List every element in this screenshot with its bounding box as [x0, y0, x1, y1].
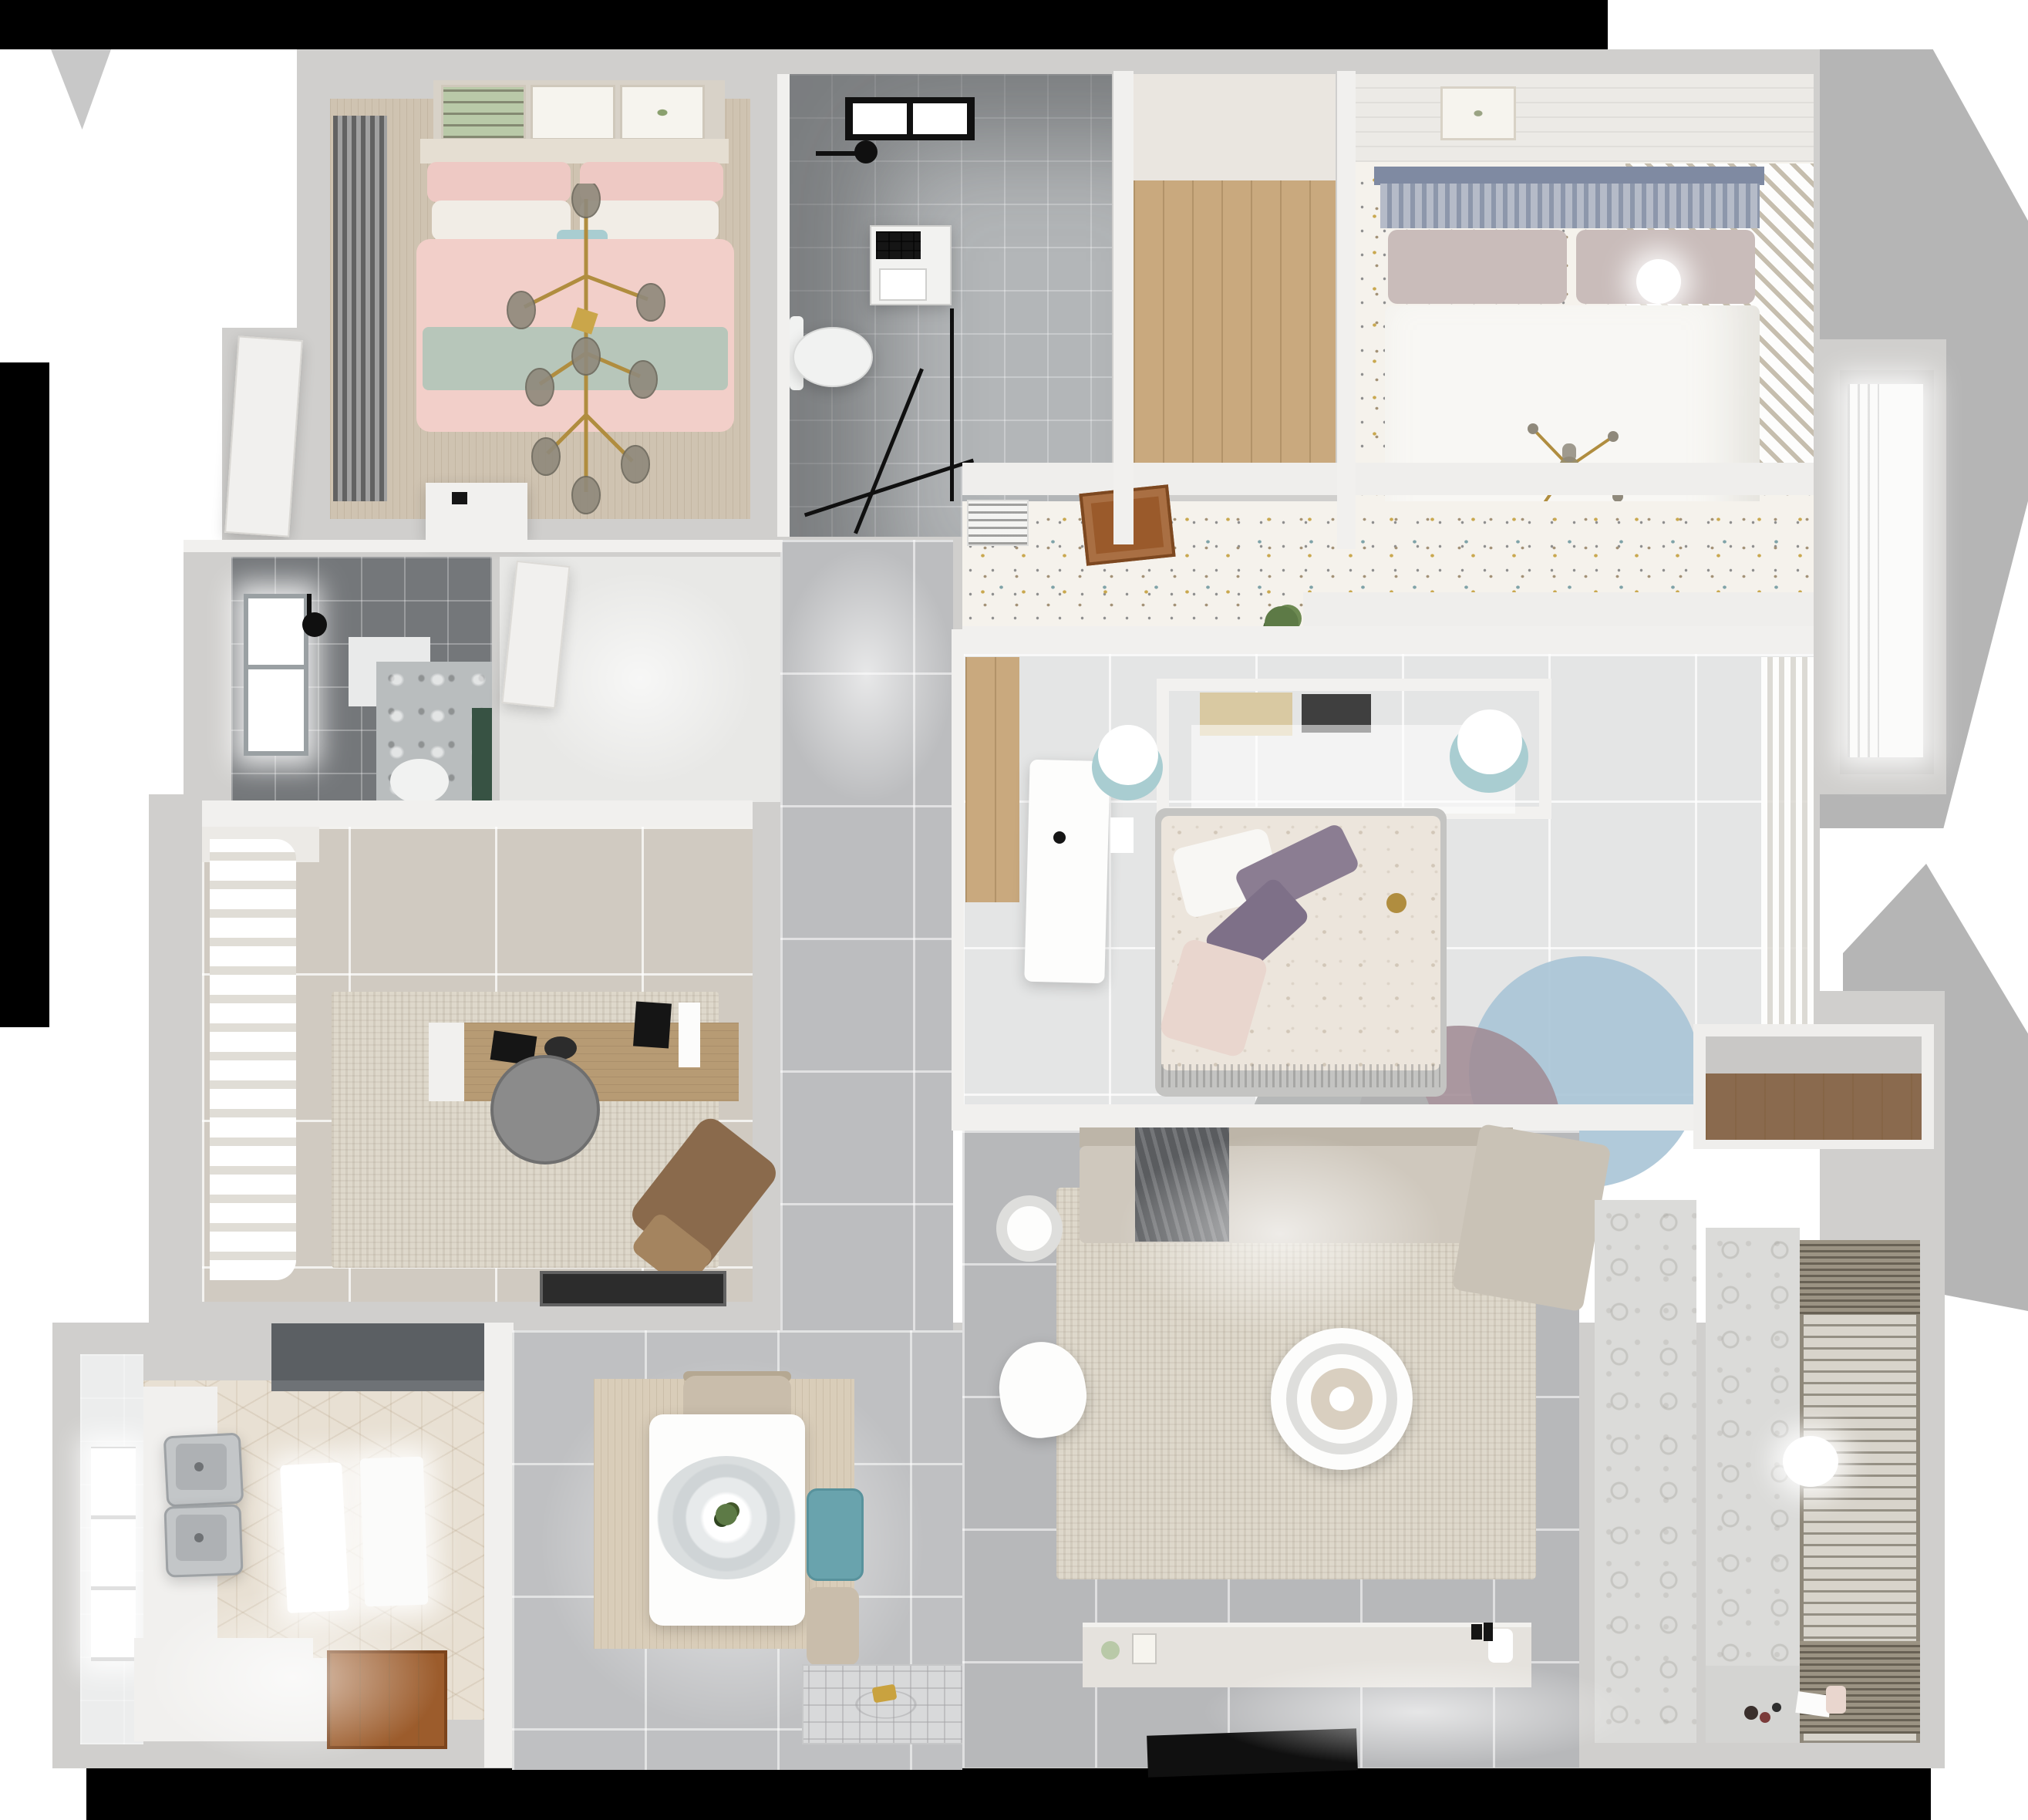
stool-top — [1098, 725, 1158, 785]
study-wavy-curtain — [210, 839, 296, 1280]
sink-drain — [194, 1533, 204, 1542]
toy-icon — [1772, 1703, 1781, 1712]
radiator-vent-icon — [967, 500, 1029, 546]
black-band-left — [0, 362, 49, 1027]
side-table-round — [996, 1195, 1063, 1262]
hallway-white-ledge — [1303, 592, 1814, 629]
storage-niche-wood — [1706, 1073, 1922, 1140]
living-lightpool — [1118, 1134, 1442, 1334]
sofa-chaise — [1451, 1124, 1611, 1313]
shower-glass-edge — [950, 308, 954, 501]
study-desk-panel — [429, 1023, 464, 1101]
hallway-shelf-band — [962, 463, 1814, 495]
toilet-bowl — [390, 759, 449, 804]
study-doormat — [540, 1271, 726, 1306]
console-decor-bottle — [1471, 1624, 1482, 1640]
window-box-glass — [1848, 384, 1923, 757]
dining-chair-beige — [807, 1587, 859, 1666]
wall-art-frame-icon — [531, 85, 615, 140]
mid-wall-left — [184, 540, 782, 552]
bathroom-dark-window-bar — [244, 665, 308, 669]
console-decor-frame — [1132, 1633, 1157, 1664]
ball-lamp-icon — [1636, 259, 1681, 304]
desk-paper — [679, 1003, 700, 1067]
console-decor-bottle — [1484, 1623, 1493, 1641]
drying-rack-top — [1800, 1240, 1920, 1314]
desk-white — [1024, 760, 1110, 984]
stool-top — [1457, 709, 1522, 774]
toilet-bowl — [793, 327, 873, 387]
bathroom-dark-window — [244, 594, 308, 756]
bathroom-window-pane — [913, 103, 967, 134]
drying-rack-bottom — [1800, 1641, 1920, 1734]
console-decor-green — [1101, 1641, 1120, 1660]
wall-art-frame-icon — [1440, 86, 1516, 140]
wall-art-green-icon — [441, 85, 526, 140]
corridor-lightpool — [780, 548, 953, 802]
green-cabinet — [472, 708, 492, 802]
counter-glow-board — [360, 1457, 429, 1607]
coffee-table-hole — [1329, 1387, 1354, 1411]
closet-ceiling-band — [1134, 74, 1336, 180]
wall-art-sprig-icon — [620, 85, 705, 140]
branch-chandelier-icon — [463, 184, 709, 515]
bed-white-headboard — [1380, 184, 1760, 228]
corridor-wall-right — [952, 629, 964, 1131]
entry-mat — [802, 1664, 970, 1744]
desk-paper — [1110, 817, 1134, 853]
bed-mauve-pillow — [1388, 230, 1567, 304]
sink-drain — [194, 1462, 204, 1471]
office-chair — [490, 1055, 600, 1164]
balcony-ceiling-light — [1783, 1436, 1838, 1487]
dining-chair-teal — [807, 1488, 864, 1581]
black-band-bottom — [86, 1768, 1931, 1820]
partition-wall — [777, 74, 790, 537]
shadow-wedge — [51, 49, 111, 130]
kitchen-dining-wall — [484, 1323, 514, 1768]
range-hood — [271, 1323, 484, 1391]
washer-panel — [876, 231, 921, 259]
partition-wall — [1337, 71, 1356, 549]
study-top-wall — [202, 800, 753, 827]
shower-head-icon — [854, 140, 878, 163]
bed-center-fringe — [1161, 1064, 1440, 1087]
dresser-item — [452, 492, 467, 504]
bedroom-center-top-wall — [962, 626, 1814, 654]
washer-door — [879, 268, 927, 301]
toy-icon — [1744, 1706, 1758, 1720]
desk-accessory — [1053, 831, 1066, 844]
bed-pink-headboard — [420, 139, 729, 163]
monitor-icon — [633, 1001, 672, 1048]
bedroom-white-panel-wall — [1354, 74, 1814, 162]
kitchen-lightpool — [147, 1589, 440, 1766]
black-band-top — [0, 0, 1608, 49]
balcony-pink-item — [1826, 1686, 1846, 1714]
bathroom-window-pane — [853, 103, 907, 134]
kitchen-window — [91, 1447, 136, 1661]
bedroom-pink-curtain — [333, 116, 387, 501]
gold-accent — [1386, 893, 1406, 913]
partition-wall — [1113, 71, 1134, 544]
living-lightpool — [1203, 1658, 1635, 1766]
dresser — [426, 483, 527, 540]
bedroom-center-bottom-wall — [962, 1104, 1814, 1131]
bedroom-center-wood-strip — [965, 657, 1019, 902]
floorplan-render — [0, 0, 2028, 1820]
storage-niche-wall — [1706, 1036, 1922, 1073]
bed-white-headboard-bar — [1374, 167, 1764, 185]
table-plant-icon — [716, 1504, 737, 1525]
toy-icon — [1760, 1712, 1770, 1723]
shower-head-icon — [302, 612, 327, 637]
closet-wood-floor — [1134, 180, 1336, 495]
open-door-white — [224, 335, 303, 537]
